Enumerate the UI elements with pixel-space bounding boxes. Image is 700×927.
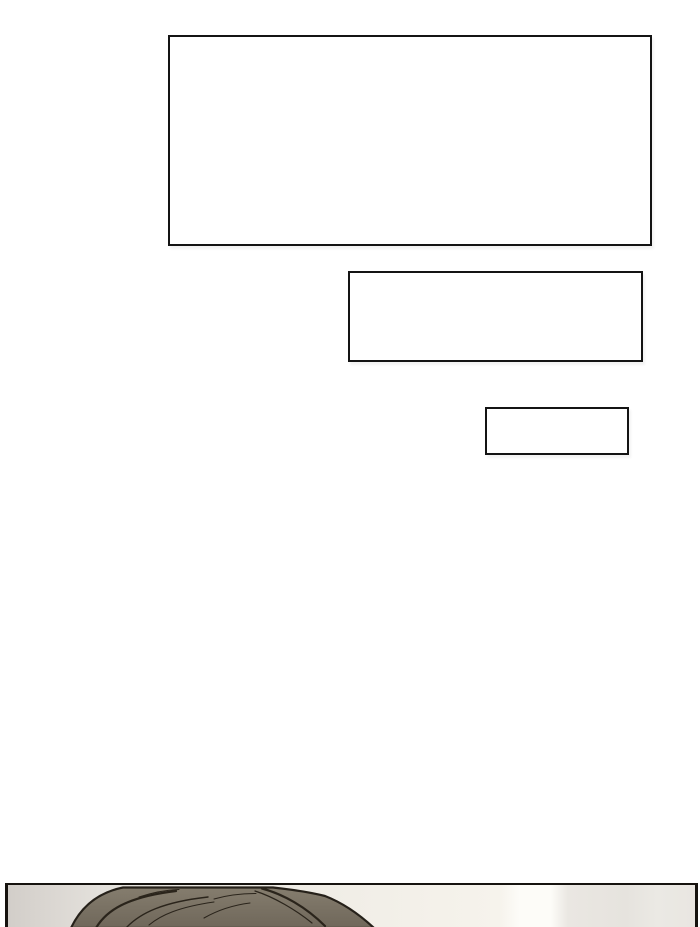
speech-box-1: [168, 35, 652, 246]
character-head-illustration: [8, 885, 695, 927]
comic-panel: [5, 883, 698, 927]
speech-box-2: [348, 271, 643, 362]
comic-page: [0, 0, 700, 927]
speech-box-3: [485, 407, 629, 455]
